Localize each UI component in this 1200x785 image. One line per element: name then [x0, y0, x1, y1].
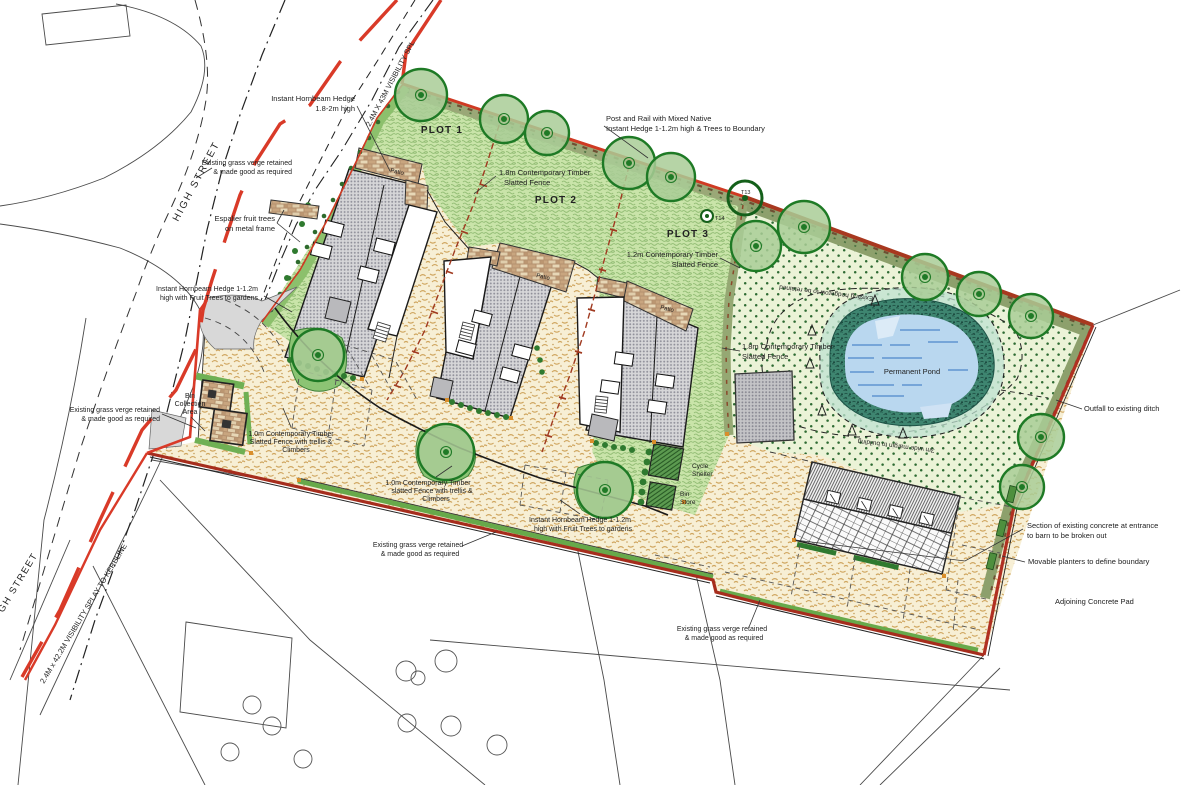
- svg-text:Post and Rail with Mixed Nativ: Post and Rail with Mixed Native: [606, 114, 711, 123]
- svg-text:Movable planters to define bou: Movable planters to define boundary: [1028, 557, 1150, 566]
- svg-text:Existing grass verge retained: Existing grass verge retained: [373, 542, 463, 549]
- svg-text:Instant Hornbeam Hedge: Instant Hornbeam Hedge: [271, 94, 355, 103]
- svg-text:Area: Area: [183, 409, 198, 416]
- svg-text:1.8m Contemporary Timber: 1.8m Contemporary Timber: [499, 168, 591, 177]
- svg-text:1.0m Contemporary Timber: 1.0m Contemporary Timber: [248, 431, 334, 438]
- svg-text:PLOT 3: PLOT 3: [667, 229, 709, 240]
- svg-text:1.0m Contemporary Timber: 1.0m Contemporary Timber: [385, 480, 471, 487]
- svg-text:Slatted Fence: Slatted Fence: [504, 178, 550, 187]
- svg-text:PLOT 1: PLOT 1: [421, 125, 463, 136]
- svg-text:1.8m Contemporary Timber: 1.8m Contemporary Timber: [742, 342, 834, 351]
- svg-text:& made good as required: & made good as required: [81, 416, 160, 423]
- svg-text:& made good as required: & made good as required: [685, 635, 764, 642]
- svg-text:Adjoining Concrete Pad: Adjoining Concrete Pad: [1055, 597, 1134, 606]
- svg-text:Slatted Fence with trellis &: Slatted Fence with trellis &: [250, 439, 333, 446]
- svg-text:on metal frame: on metal frame: [225, 224, 275, 233]
- svg-text:Climbers: Climbers: [282, 447, 310, 454]
- svg-text:& made good as required: & made good as required: [213, 169, 292, 176]
- svg-text:Existing grass verge retained: Existing grass verge retained: [70, 407, 160, 414]
- svg-text:Existing grass verge retained: Existing grass verge retained: [202, 160, 292, 167]
- svg-text:PLOT 2: PLOT 2: [535, 195, 577, 206]
- svg-text:to barn to be broken out: to barn to be broken out: [1027, 531, 1108, 540]
- svg-text:Outfall to existing ditch: Outfall to existing ditch: [1084, 404, 1159, 413]
- svg-text:high with Fruit Trees to garde: high with Fruit Trees to gardens: [160, 295, 259, 302]
- svg-text:slatted Fence with trellis &: slatted Fence with trellis &: [391, 488, 473, 495]
- svg-text:Slatted Fence: Slatted Fence: [742, 352, 788, 361]
- svg-text:Instant Hedge 1-1.2m high & Tr: Instant Hedge 1-1.2m high & Trees to Bou…: [606, 124, 765, 133]
- svg-text:1.2m Contemporary Timber: 1.2m Contemporary Timber: [627, 250, 719, 259]
- svg-text:1.8-2m high: 1.8-2m high: [315, 104, 355, 113]
- svg-text:Store: Store: [680, 499, 696, 506]
- svg-text:Permanent Pond: Permanent Pond: [884, 367, 940, 376]
- svg-text:T13: T13: [741, 190, 750, 196]
- svg-text:Bin: Bin: [680, 491, 690, 498]
- svg-text:Espalier fruit trees: Espalier fruit trees: [215, 214, 276, 223]
- svg-text:high with Fruit Trees to garde: high with Fruit Trees to gardens: [534, 526, 633, 533]
- svg-text:Shelter: Shelter: [692, 471, 713, 478]
- svg-text:Section of existing concrete a: Section of existing concrete at entrance: [1027, 521, 1158, 530]
- svg-text:Instant Hornbeam Hedge 1-1.2m: Instant Hornbeam Hedge 1-1.2m: [529, 517, 631, 524]
- svg-text:& made good as required: & made good as required: [381, 551, 460, 558]
- svg-text:Collection: Collection: [175, 401, 206, 408]
- svg-text:Cycle: Cycle: [692, 463, 709, 470]
- svg-text:Existing grass verge retained: Existing grass verge retained: [677, 626, 767, 633]
- svg-text:T14: T14: [715, 216, 724, 222]
- svg-text:Bin: Bin: [185, 393, 195, 400]
- svg-text:Climbers: Climbers: [422, 496, 450, 503]
- svg-text:Instant Hornbeam Hedge 1-1.2m: Instant Hornbeam Hedge 1-1.2m: [156, 286, 258, 293]
- svg-text:Slatted Fence: Slatted Fence: [672, 260, 718, 269]
